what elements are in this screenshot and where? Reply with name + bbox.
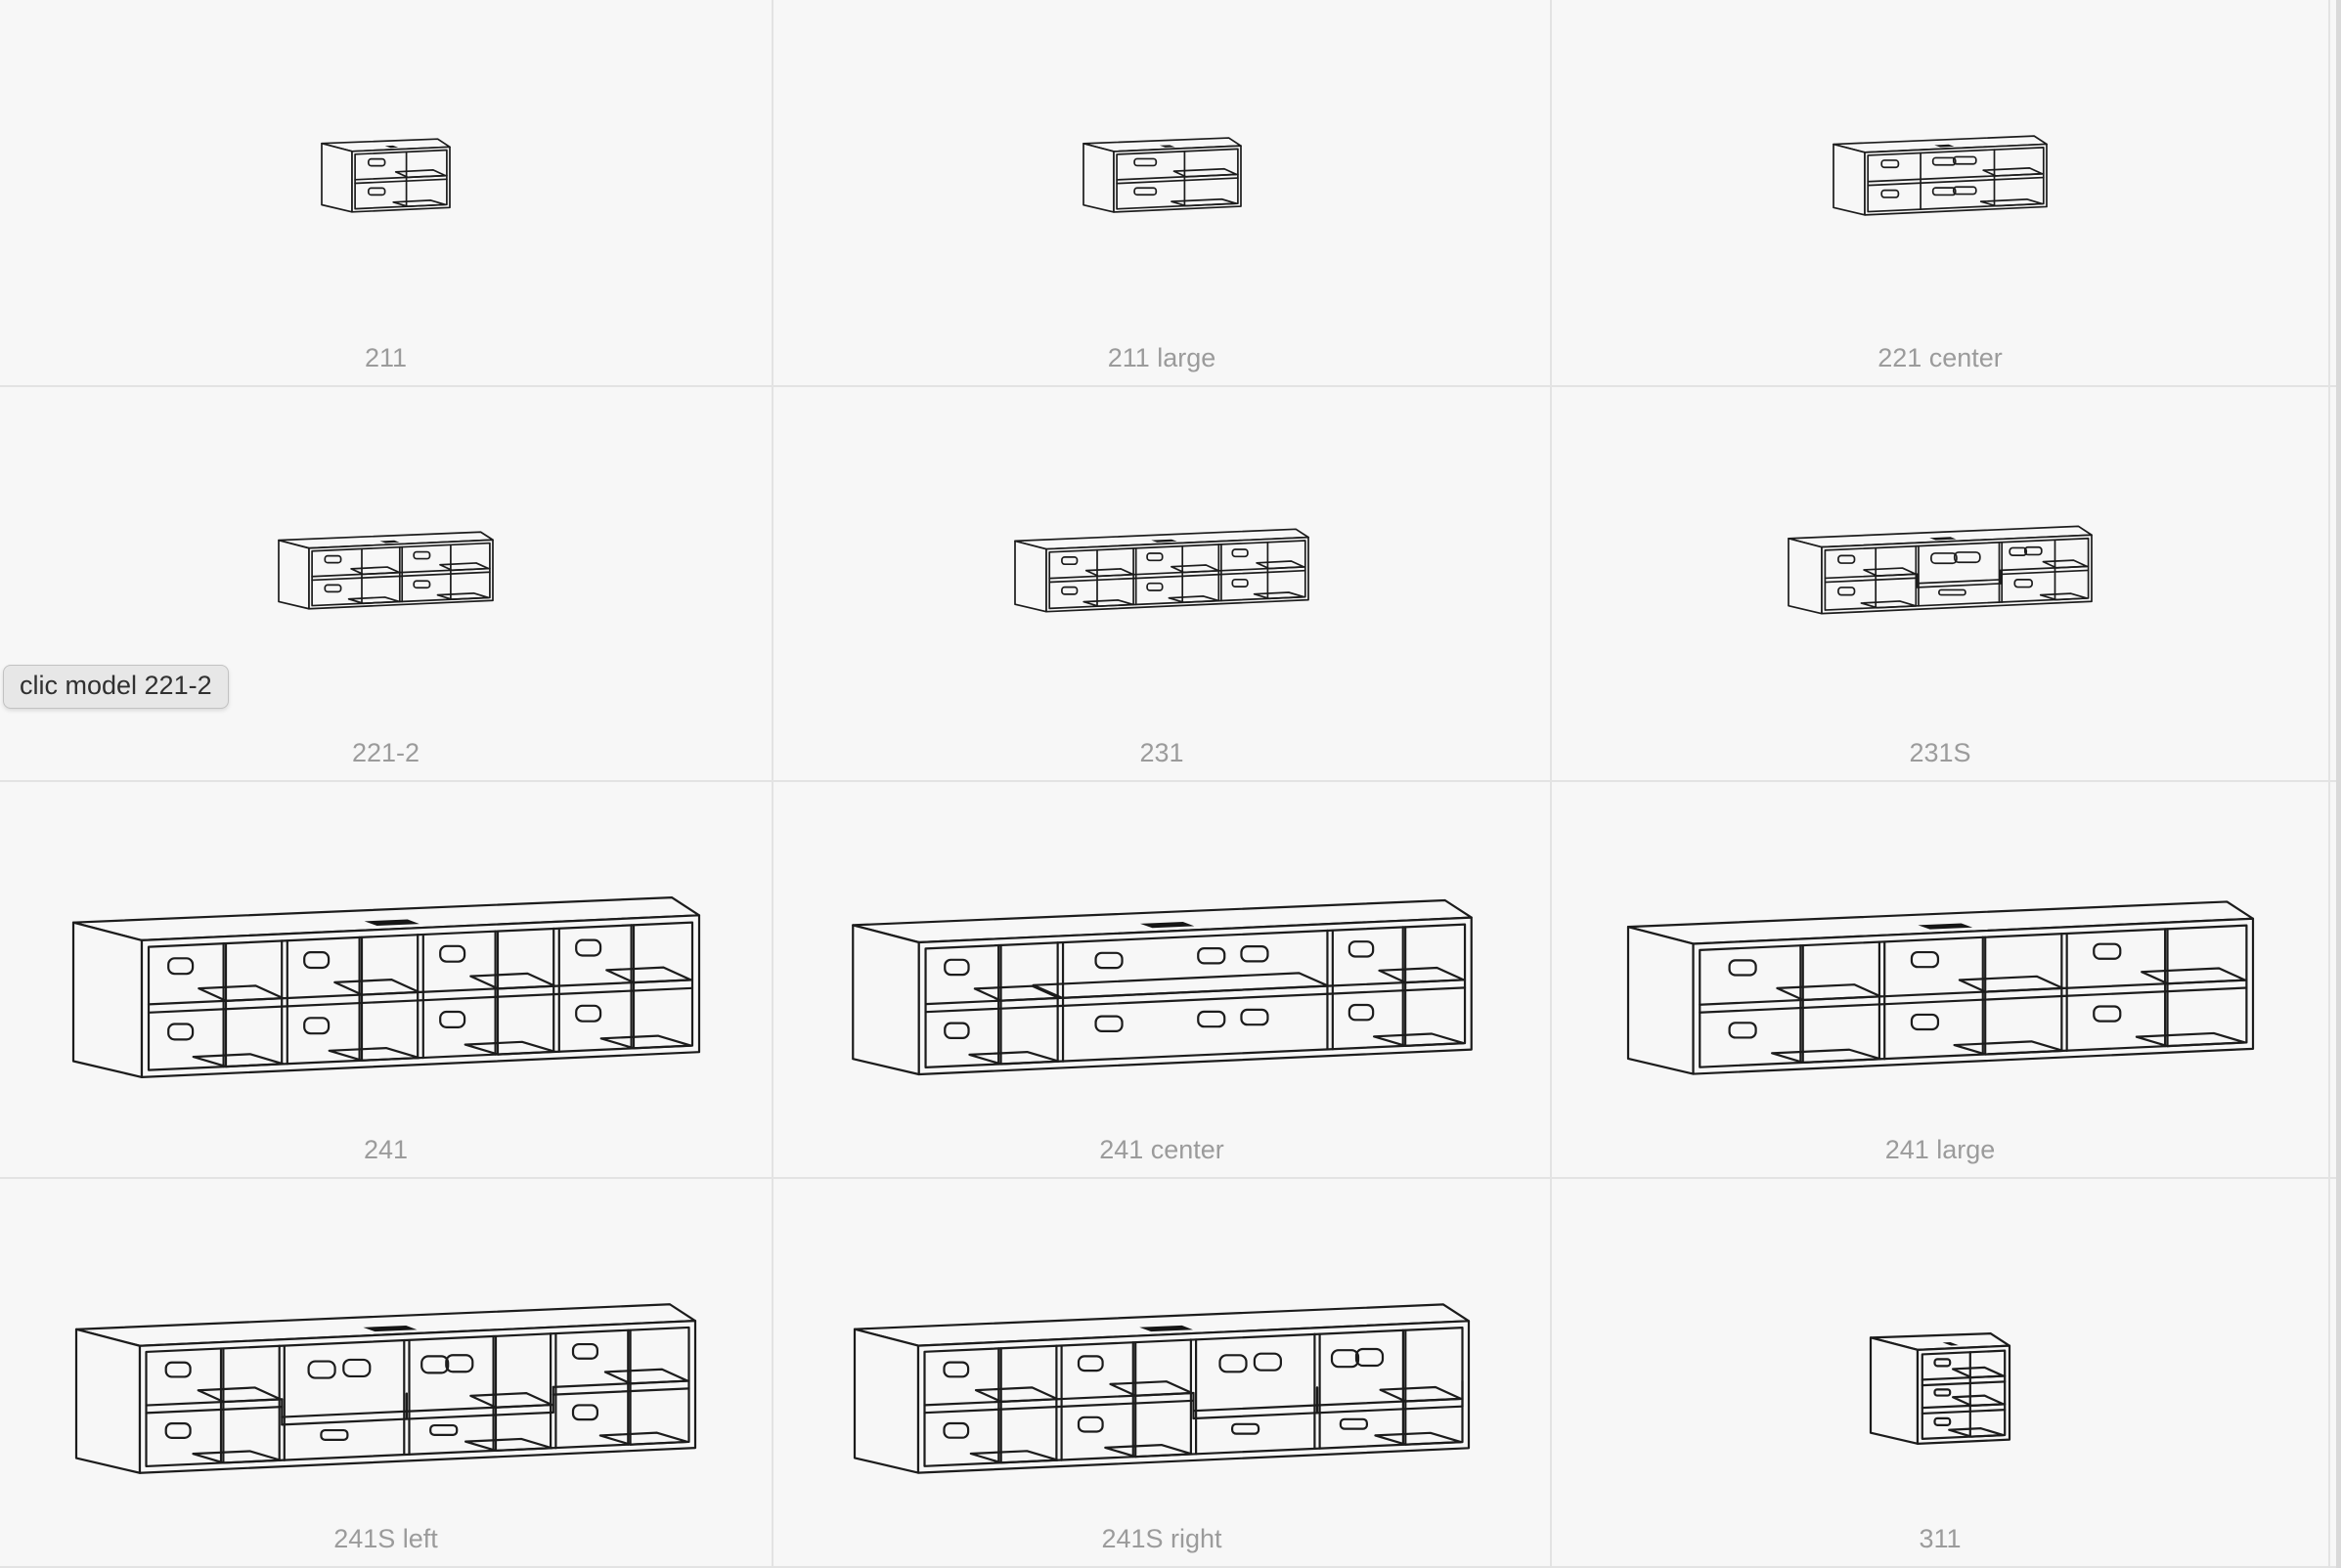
model-drawing-211-large — [773, 0, 1550, 342]
model-cell-211-large[interactable]: 211 large — [773, 0, 1552, 387]
model-cell-241S-left[interactable]: 241S left — [0, 1179, 773, 1568]
model-cell-241-large[interactable]: 241 large — [1552, 782, 2330, 1179]
model-label: 241 — [364, 1134, 408, 1177]
model-cell-231S[interactable]: 231S — [1552, 387, 2330, 782]
model-label: 211 — [365, 342, 407, 385]
model-grid: 211 211 large 221 center 221-2 231 231S … — [0, 0, 2341, 1568]
model-drawing-241-center — [773, 782, 1550, 1134]
model-drawing-311 — [1552, 1179, 2328, 1523]
model-cell-241[interactable]: 241 — [0, 782, 773, 1179]
model-cell-231[interactable]: 231 — [773, 387, 1552, 782]
model-label: 221 center — [1877, 342, 2003, 385]
model-label: 241 large — [1885, 1134, 1996, 1177]
hover-tooltip: clic model 221-2 — [3, 665, 229, 709]
model-cell-241-center[interactable]: 241 center — [773, 782, 1552, 1179]
model-cell-221-2[interactable]: 221-2 — [0, 387, 773, 782]
model-label: 231S — [1909, 737, 1970, 780]
model-cell-221-center[interactable]: 221 center — [1552, 0, 2330, 387]
model-cell-241S-right[interactable]: 241S right — [773, 1179, 1552, 1568]
model-cell-311[interactable]: 311 — [1552, 1179, 2330, 1568]
model-label: 221-2 — [352, 737, 420, 780]
model-label: 211 large — [1108, 342, 1216, 385]
model-drawing-241S-left — [0, 1179, 772, 1523]
model-label: 241S left — [333, 1523, 438, 1566]
model-drawing-231 — [773, 387, 1550, 737]
model-cell-211[interactable]: 211 — [0, 0, 773, 387]
model-drawing-211 — [0, 0, 772, 342]
model-drawing-231S — [1552, 387, 2328, 737]
model-drawing-241 — [0, 782, 772, 1134]
model-label: 231 — [1139, 737, 1183, 780]
vertical-scrollbar[interactable] — [2336, 0, 2341, 1568]
model-drawing-221-center — [1552, 0, 2328, 342]
model-drawing-241-large — [1552, 782, 2328, 1134]
model-label: 241S right — [1101, 1523, 1221, 1566]
model-drawing-241S-right — [773, 1179, 1550, 1523]
model-label: 311 — [1919, 1523, 1961, 1566]
model-label: 241 center — [1099, 1134, 1224, 1177]
